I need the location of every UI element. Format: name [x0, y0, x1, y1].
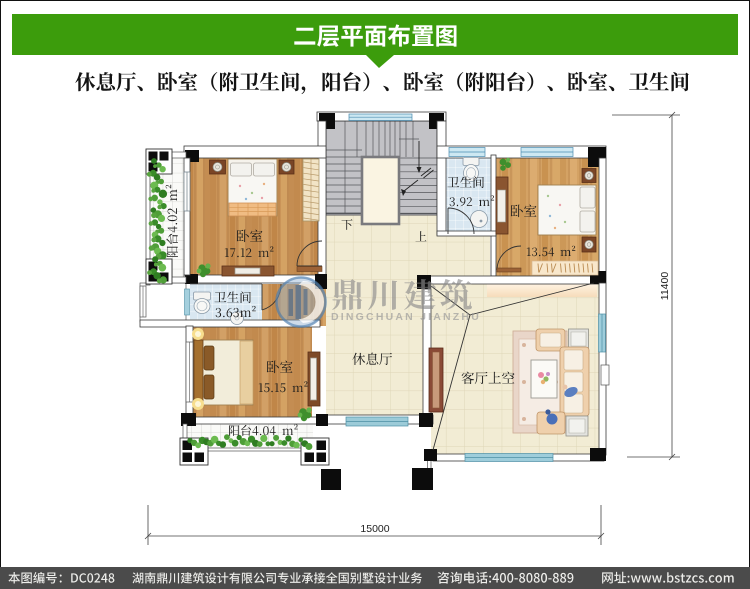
svg-text:15000: 15000 [360, 523, 389, 535]
svg-text:DINGCHUAN JIANZHU: DINGCHUAN JIANZHU [331, 311, 481, 323]
svg-text:11400: 11400 [659, 272, 671, 301]
